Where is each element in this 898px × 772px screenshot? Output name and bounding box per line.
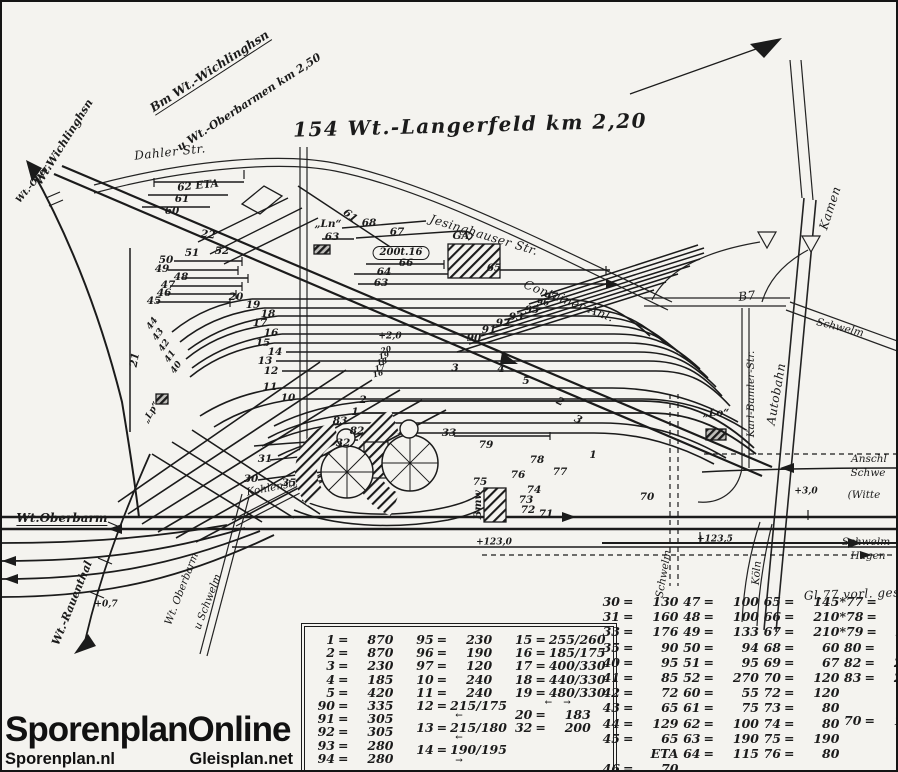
track-length-entry: 60=55 bbox=[678, 685, 758, 700]
site-url-sporenplan: Sporenplan.nl bbox=[5, 750, 115, 769]
direction-note: → bbox=[412, 757, 511, 766]
table-column: 47=10048=10049=13350=9451=9552=27060=556… bbox=[678, 594, 758, 770]
table-column: 1=8702=8703=2304=1855=42090=33591=30592=… bbox=[313, 633, 412, 772]
track-length-entry: 33=176 bbox=[598, 624, 678, 639]
track-length-entry: 76=80 bbox=[759, 746, 839, 761]
track-length-entry: 97=120 bbox=[412, 659, 511, 672]
track-length-entry: 3=230 bbox=[313, 659, 412, 672]
branding-block: SporenplanOnline Sporenplan.nl Gleisplan… bbox=[5, 712, 301, 769]
track-length-entry: 74=80 bbox=[759, 716, 839, 731]
track-length-entry: 65=145 bbox=[759, 594, 839, 609]
track-length-entry: 4=185 bbox=[313, 673, 412, 686]
track-length-entry: 18=440/330 bbox=[510, 673, 609, 686]
track-length-entry: 80=85 bbox=[839, 640, 898, 655]
track-length-table-left: 1=8702=8703=2304=1855=42090=33591=30592=… bbox=[304, 626, 614, 772]
roads bbox=[94, 60, 898, 656]
table-column: *77=150*78=160*79=28580=8582=26383=25270… bbox=[839, 594, 898, 770]
track-length-entry: *79=285 bbox=[839, 624, 898, 639]
track-length-table-right: 30=13031=16033=17635=9040=9541=8542=7243… bbox=[598, 594, 896, 770]
track-length-entry: 66=210 bbox=[759, 609, 839, 624]
track-length-entry: 70=175 bbox=[839, 713, 898, 728]
north-arrow bbox=[630, 38, 782, 94]
track-length-entry: 35=90 bbox=[598, 640, 678, 655]
track-length-entry: 64=115 bbox=[678, 746, 758, 761]
track-length-entry: 10=240 bbox=[412, 673, 511, 686]
table-column: 65=14566=21067=21068=6069=6770=12072=120… bbox=[759, 594, 839, 770]
track-length-entry: 68=60 bbox=[759, 640, 839, 655]
table-column: 30=13031=16033=17635=9040=9541=8542=7243… bbox=[598, 594, 678, 770]
track-length-entry: 50=94 bbox=[678, 640, 758, 655]
track-length-entry: 62=100 bbox=[678, 716, 758, 731]
goods-shed-outline bbox=[242, 186, 282, 214]
track-length-entry: 47=100 bbox=[678, 594, 758, 609]
track-length-entry: 44=129 bbox=[598, 716, 678, 731]
track-length-entry: 45=65 ETA bbox=[598, 731, 678, 761]
track-length-entry: 51=95 bbox=[678, 655, 758, 670]
track-length-entry: 72=120 bbox=[759, 685, 839, 700]
track-length-entry: 52=270 bbox=[678, 670, 758, 685]
site-logo: SporenplanOnline bbox=[5, 712, 301, 748]
lo-marker-box bbox=[706, 429, 726, 440]
track-length-entry: 92=305 bbox=[313, 725, 412, 738]
buildings bbox=[156, 186, 726, 522]
track-length-entry: 48=100 bbox=[678, 609, 758, 624]
trackplan-scan: 154 Wt.-Langerfeld km 2,20 Bm Wt.-Wichli… bbox=[0, 0, 898, 772]
track-length-entry: 70=120 bbox=[759, 670, 839, 685]
lp-marker-box bbox=[156, 394, 168, 404]
track-length-entry: 73=80 bbox=[759, 700, 839, 715]
track-length-entry: 32=200 bbox=[510, 721, 609, 734]
ga-building bbox=[448, 244, 500, 278]
track-length-entry: 83=252 bbox=[839, 670, 898, 685]
track-length-entry: 30=130 bbox=[598, 594, 678, 609]
ln-marker-box bbox=[314, 245, 330, 254]
table-column: 15=255/26016=185/17517=400/33018=440/330… bbox=[510, 633, 609, 772]
track-length-entry: 41=85 bbox=[598, 670, 678, 685]
track-length-entry: 93=280 bbox=[313, 739, 412, 752]
track-length-entry: 82=263 bbox=[839, 655, 898, 670]
track-length-entry: 42=72 bbox=[598, 685, 678, 700]
track-length-entry: *77=150 bbox=[839, 594, 898, 609]
track-length-entry: *78=160 bbox=[839, 609, 898, 624]
track-length-entry: 75=190 bbox=[759, 731, 839, 746]
track-length-entry: 63=190 bbox=[678, 731, 758, 746]
track-length-entry: 69=67 bbox=[759, 655, 839, 670]
track-length-entry: 61=75 bbox=[678, 700, 758, 715]
track-length-entry: 67=210 bbox=[759, 624, 839, 639]
track-length-entry: 14=190/195 bbox=[412, 743, 511, 756]
track-length-entry: 49=133 bbox=[678, 624, 758, 639]
table-column: 95=23096=19097=12010=24011=24012=215/175… bbox=[412, 633, 511, 772]
track-length-entry: 17=400/330 bbox=[510, 659, 609, 672]
bmw-building bbox=[484, 488, 506, 522]
track-length-entry: 31=160 bbox=[598, 609, 678, 624]
track-length-entry: 40=95 bbox=[598, 655, 678, 670]
track-length-entry: 43=65 bbox=[598, 700, 678, 715]
site-url-gleisplan: Gleisplan.net bbox=[189, 750, 293, 769]
track-length-entry: 46=70 bbox=[598, 761, 678, 772]
track-length-entry: 94=280 bbox=[313, 752, 412, 765]
